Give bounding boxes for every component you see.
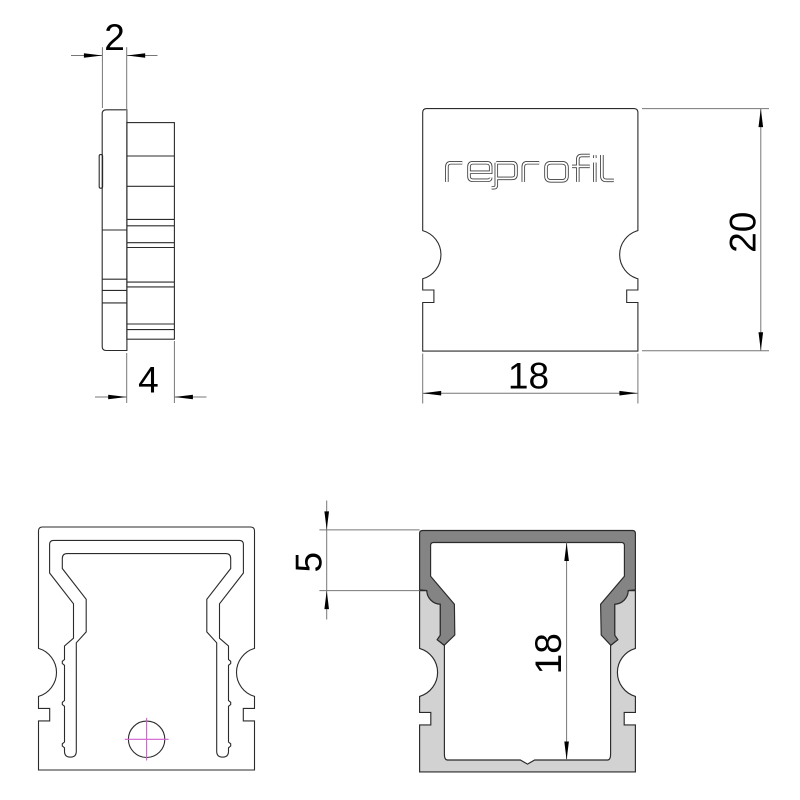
svg-text:20: 20 (723, 212, 764, 253)
svg-text:5: 5 (288, 552, 329, 573)
svg-text:18: 18 (528, 633, 569, 674)
svg-text:4: 4 (138, 360, 159, 401)
svg-text:18: 18 (508, 355, 549, 396)
svg-text:2: 2 (104, 17, 125, 58)
